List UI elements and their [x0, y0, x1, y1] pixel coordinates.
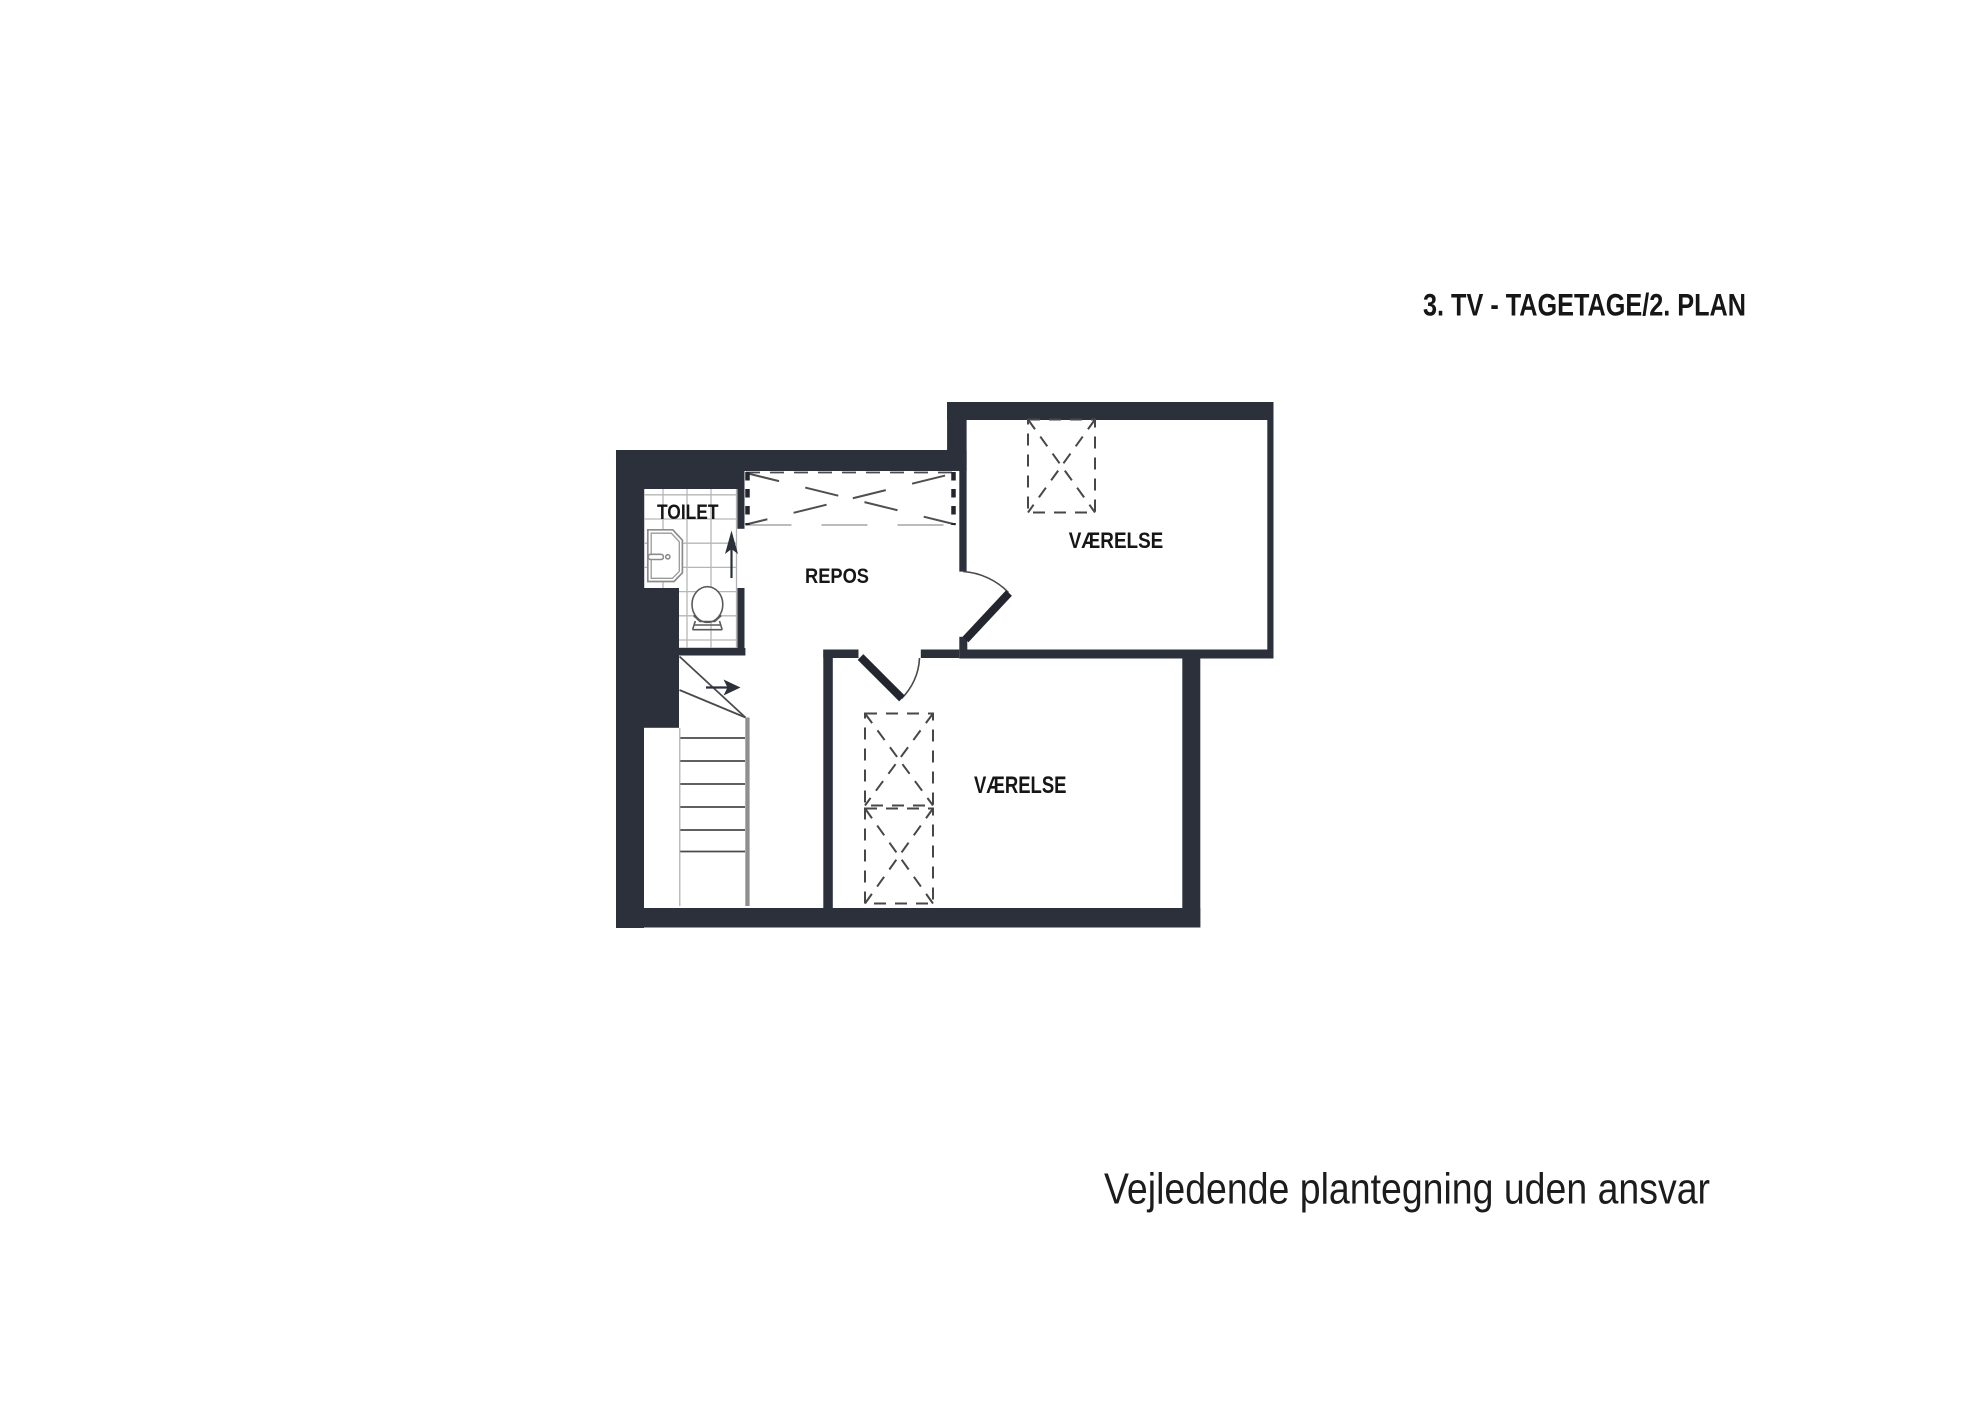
svg-text:VÆRELSE: VÆRELSE	[1069, 528, 1164, 553]
svg-text:Vejledende plantegning uden an: Vejledende plantegning uden ansvar	[1104, 1166, 1710, 1214]
svg-text:REPOS: REPOS	[805, 564, 869, 588]
svg-text:TOILET: TOILET	[657, 501, 719, 524]
svg-text:VÆRELSE: VÆRELSE	[974, 772, 1067, 799]
svg-text:3. TV - TAGETAGE/2. PLAN: 3. TV - TAGETAGE/2. PLAN	[1423, 287, 1746, 323]
